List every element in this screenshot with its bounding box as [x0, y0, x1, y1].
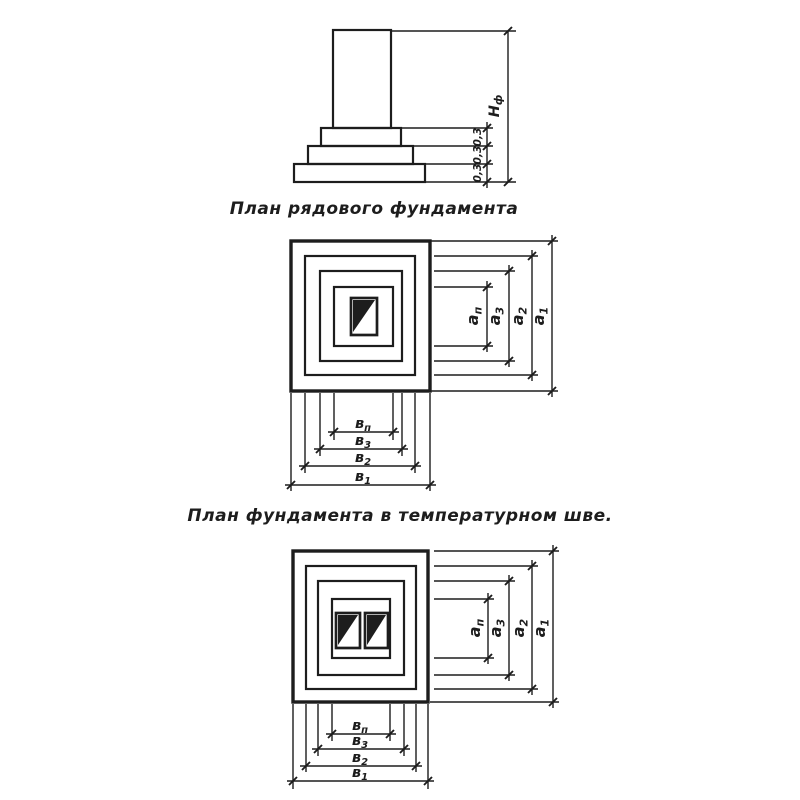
plan-expansion-joint-view: ап а3 а2 а1 вп в3 в2 в1: [287, 545, 559, 789]
plan-ordinary-view: ап а3 а2 а1 вп в3 в2 в1: [285, 235, 558, 491]
plan2-length-label-a2: а2: [509, 618, 531, 637]
plan1-length-label-ap: ап: [463, 306, 485, 325]
label-base: а: [509, 626, 528, 637]
label-base: а: [486, 626, 505, 637]
foundation-technical-drawing: 0,3 0,3 0,3 Нф План рядового фундамента …: [0, 0, 800, 800]
plan1-width-label-v2: в2: [355, 450, 371, 468]
label-base: в: [355, 450, 364, 466]
label-sub: 1: [538, 307, 551, 315]
plan2-length-label-a1: а1: [530, 619, 552, 637]
footing-step-2-outline: [308, 146, 413, 164]
plan1-width-label-v1: в1: [355, 469, 371, 487]
plan2-length-label-ap: ап: [465, 618, 487, 637]
label-base: в: [355, 433, 364, 449]
plan2-length-label-a3: а3: [486, 618, 508, 637]
label-base: а: [485, 314, 504, 325]
label-base: в: [352, 750, 361, 766]
total-height-label-base: Н: [487, 105, 503, 117]
label-base: в: [352, 718, 361, 734]
label-sub: 2: [361, 757, 368, 768]
label-base: а: [530, 626, 549, 637]
caption-plan-expansion-joint: План фундамента в температурном шве.: [187, 506, 612, 526]
step-height-label-1: 0,3: [472, 128, 484, 147]
caption-plan-ordinary: План рядового фундамента: [230, 199, 519, 219]
plan1-width-label-v3: в3: [355, 433, 371, 451]
label-base: а: [463, 314, 482, 325]
footing-step-1-outline: [321, 128, 401, 146]
elevation-view: 0,3 0,3 0,3 Нф: [294, 27, 516, 188]
label-sub: п: [361, 725, 368, 736]
plan2-column-right-fill: [367, 615, 386, 645]
step-height-label-2: 0,3: [472, 146, 484, 165]
plan1-width-label-vp: вп: [355, 416, 371, 434]
label-base: в: [352, 765, 361, 781]
drawing-sheet: 0,3 0,3 0,3 Нф План рядового фундамента …: [0, 0, 800, 800]
label-sub: 1: [539, 619, 552, 627]
label-base: а: [529, 314, 548, 325]
plan1-length-label-a3: а3: [485, 306, 507, 325]
label-base: в: [355, 469, 364, 485]
footing-step-3-outline: [294, 164, 425, 182]
label-base: в: [352, 733, 361, 749]
label-sub: 3: [494, 306, 507, 314]
label-sub: п: [474, 618, 487, 626]
label-sub: 2: [518, 618, 531, 626]
label-sub: 1: [361, 772, 368, 783]
label-sub: п: [364, 423, 371, 434]
plan2-column-left-fill: [338, 615, 358, 645]
label-sub: 2: [364, 457, 371, 468]
total-height-label-sub: ф: [493, 95, 505, 105]
label-base: в: [355, 416, 364, 432]
label-sub: 2: [517, 306, 530, 314]
label-sub: п: [472, 306, 485, 314]
column-outline: [333, 30, 391, 128]
label-sub: 1: [364, 476, 371, 487]
step-height-label-3: 0,3: [472, 164, 484, 183]
plan1-length-label-a2: а2: [508, 306, 530, 325]
label-sub: 3: [495, 618, 508, 626]
label-sub: 3: [364, 440, 371, 451]
label-sub: 3: [361, 740, 368, 751]
plan1-column-section-fill: [353, 300, 375, 332]
total-height-label: Нф: [487, 95, 505, 118]
label-base: а: [465, 626, 484, 637]
label-base: а: [508, 314, 527, 325]
